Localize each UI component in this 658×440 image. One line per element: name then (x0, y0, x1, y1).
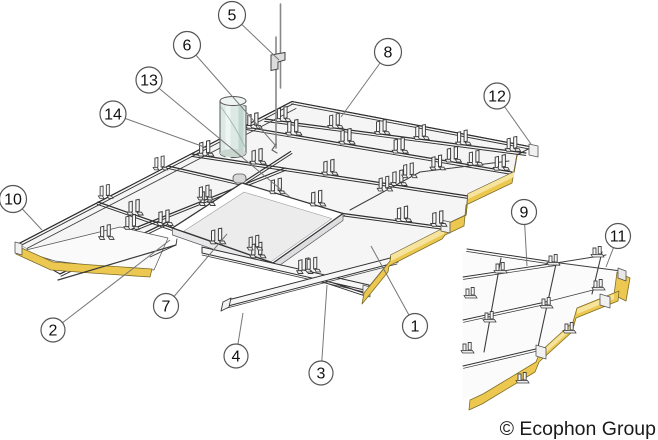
svg-text:11: 11 (610, 229, 627, 246)
svg-text:10: 10 (4, 192, 22, 209)
svg-text:12: 12 (488, 89, 506, 106)
svg-text:5: 5 (228, 8, 237, 25)
svg-text:8: 8 (384, 45, 393, 62)
svg-text:6: 6 (183, 38, 192, 55)
svg-text:7: 7 (162, 299, 171, 316)
svg-text:© Ecophon Group: © Ecophon Group (500, 418, 657, 440)
svg-text:2: 2 (49, 323, 58, 340)
svg-text:9: 9 (520, 205, 529, 222)
svg-text:4: 4 (232, 349, 241, 366)
svg-text:14: 14 (104, 107, 122, 124)
svg-text:13: 13 (140, 73, 158, 90)
svg-text:1: 1 (411, 319, 420, 336)
svg-text:3: 3 (317, 366, 326, 383)
